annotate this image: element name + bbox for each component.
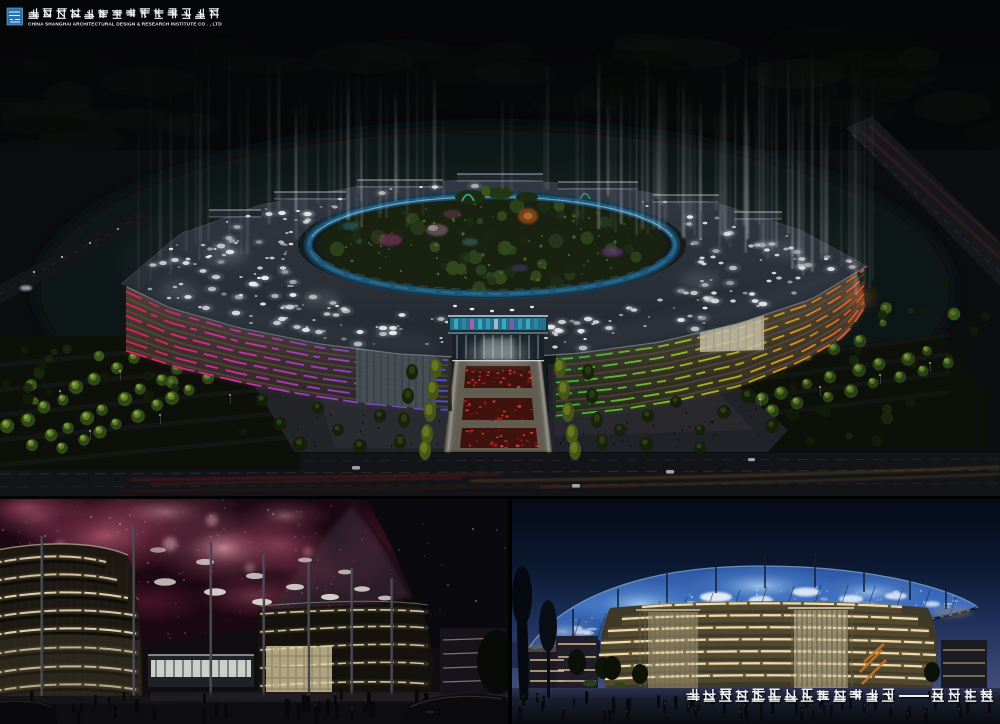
- svg-text:CHINA SHANGHAI ARCHITECTURAL D: CHINA SHANGHAI ARCHITECTURAL DESIGN & RE…: [28, 22, 222, 28]
